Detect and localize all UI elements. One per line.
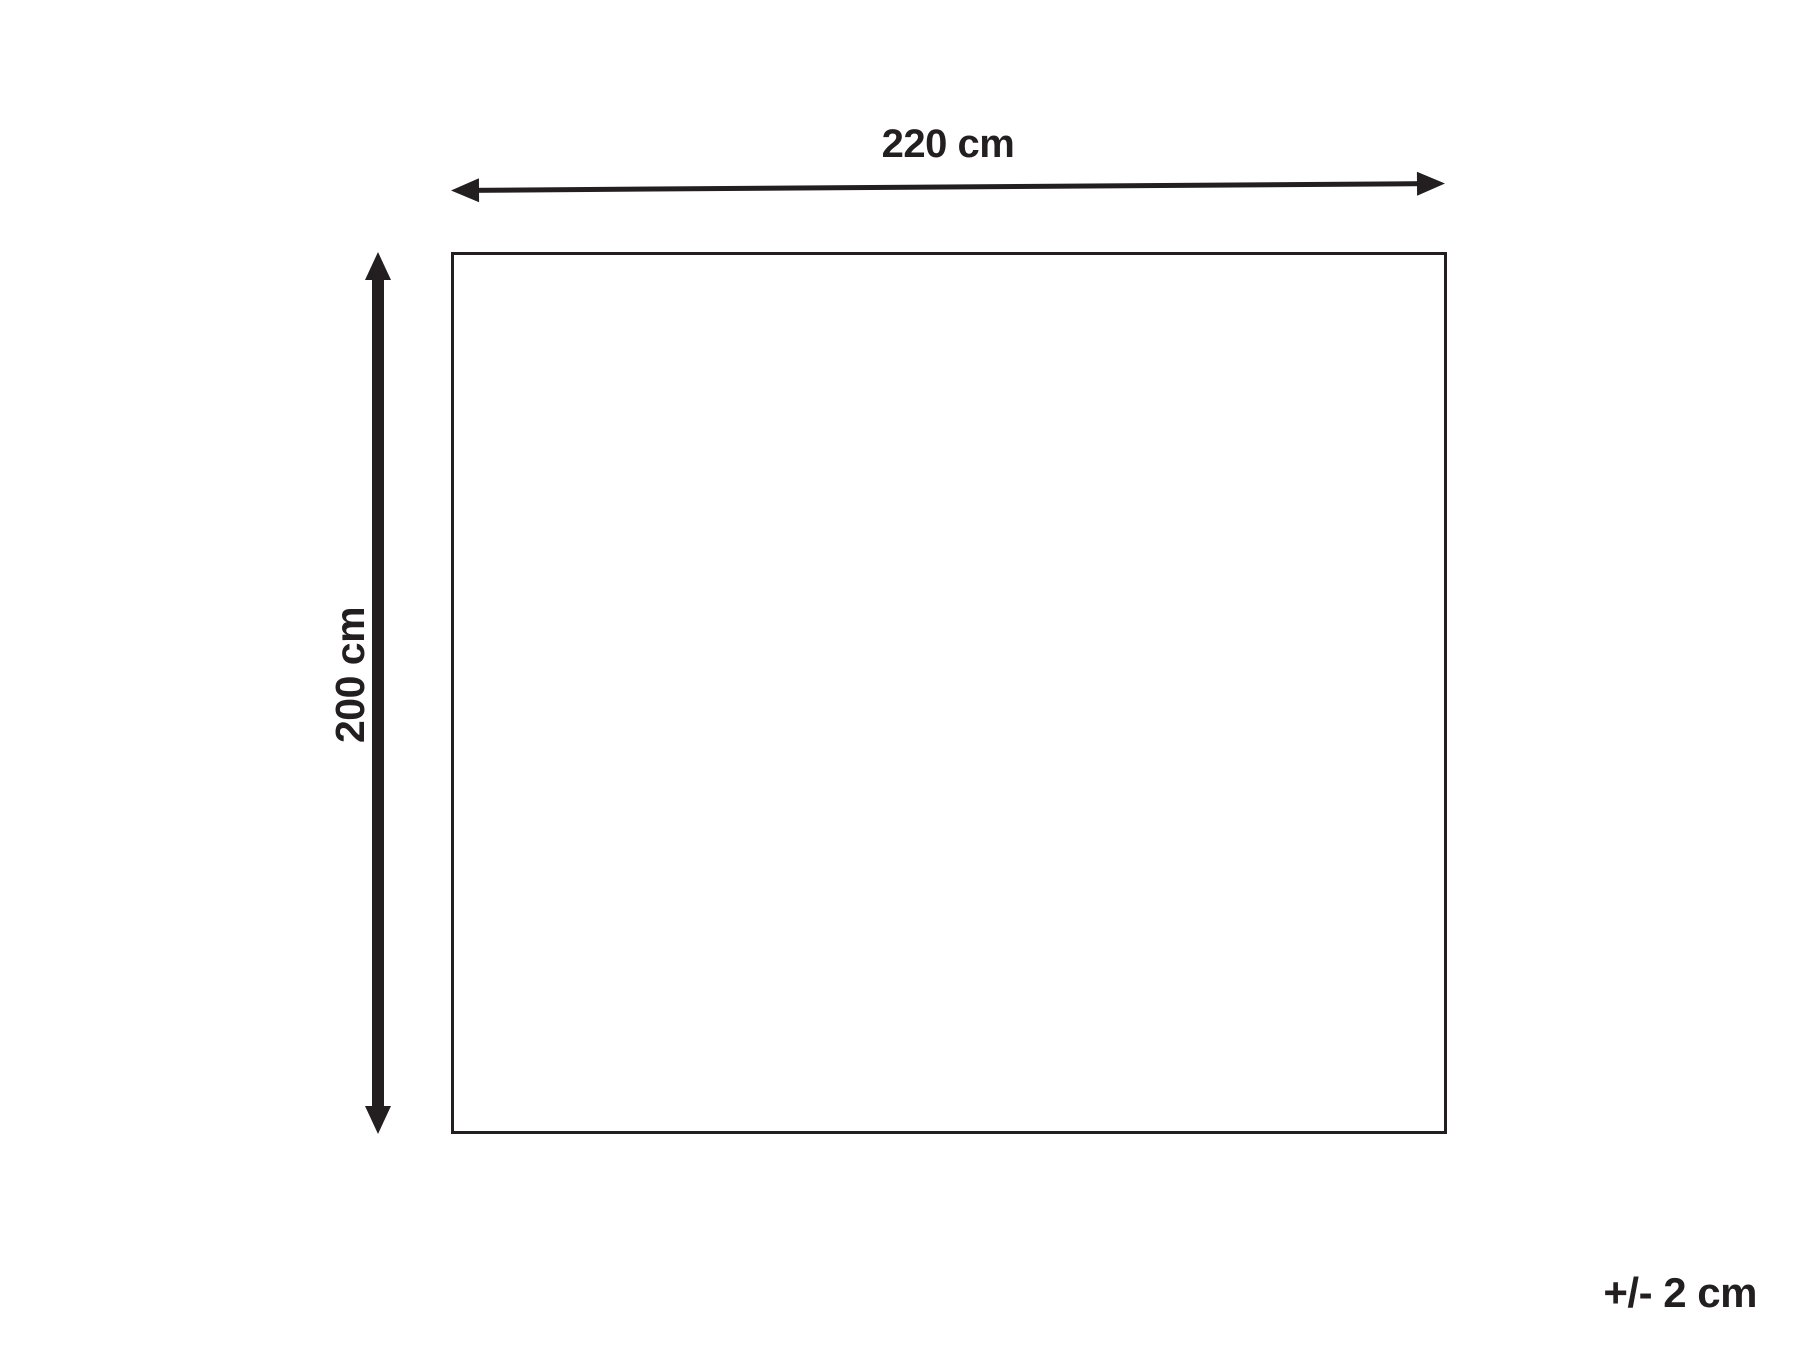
arrowhead-down-icon (365, 1106, 391, 1134)
width-arrow-line (471, 181, 1425, 193)
height-arrow-line (372, 272, 384, 1114)
tolerance-note: +/- 2 cm (1603, 1270, 1757, 1316)
arrowhead-right-icon (1417, 172, 1445, 196)
height-dimension-arrow (365, 252, 391, 1134)
product-outline-rectangle (451, 252, 1447, 1134)
width-dimension-label: 220 cm (451, 122, 1445, 166)
width-dimension-arrow (451, 171, 1445, 204)
dimension-diagram: 220 cm 200 cm +/- 2 cm (0, 0, 1800, 1350)
